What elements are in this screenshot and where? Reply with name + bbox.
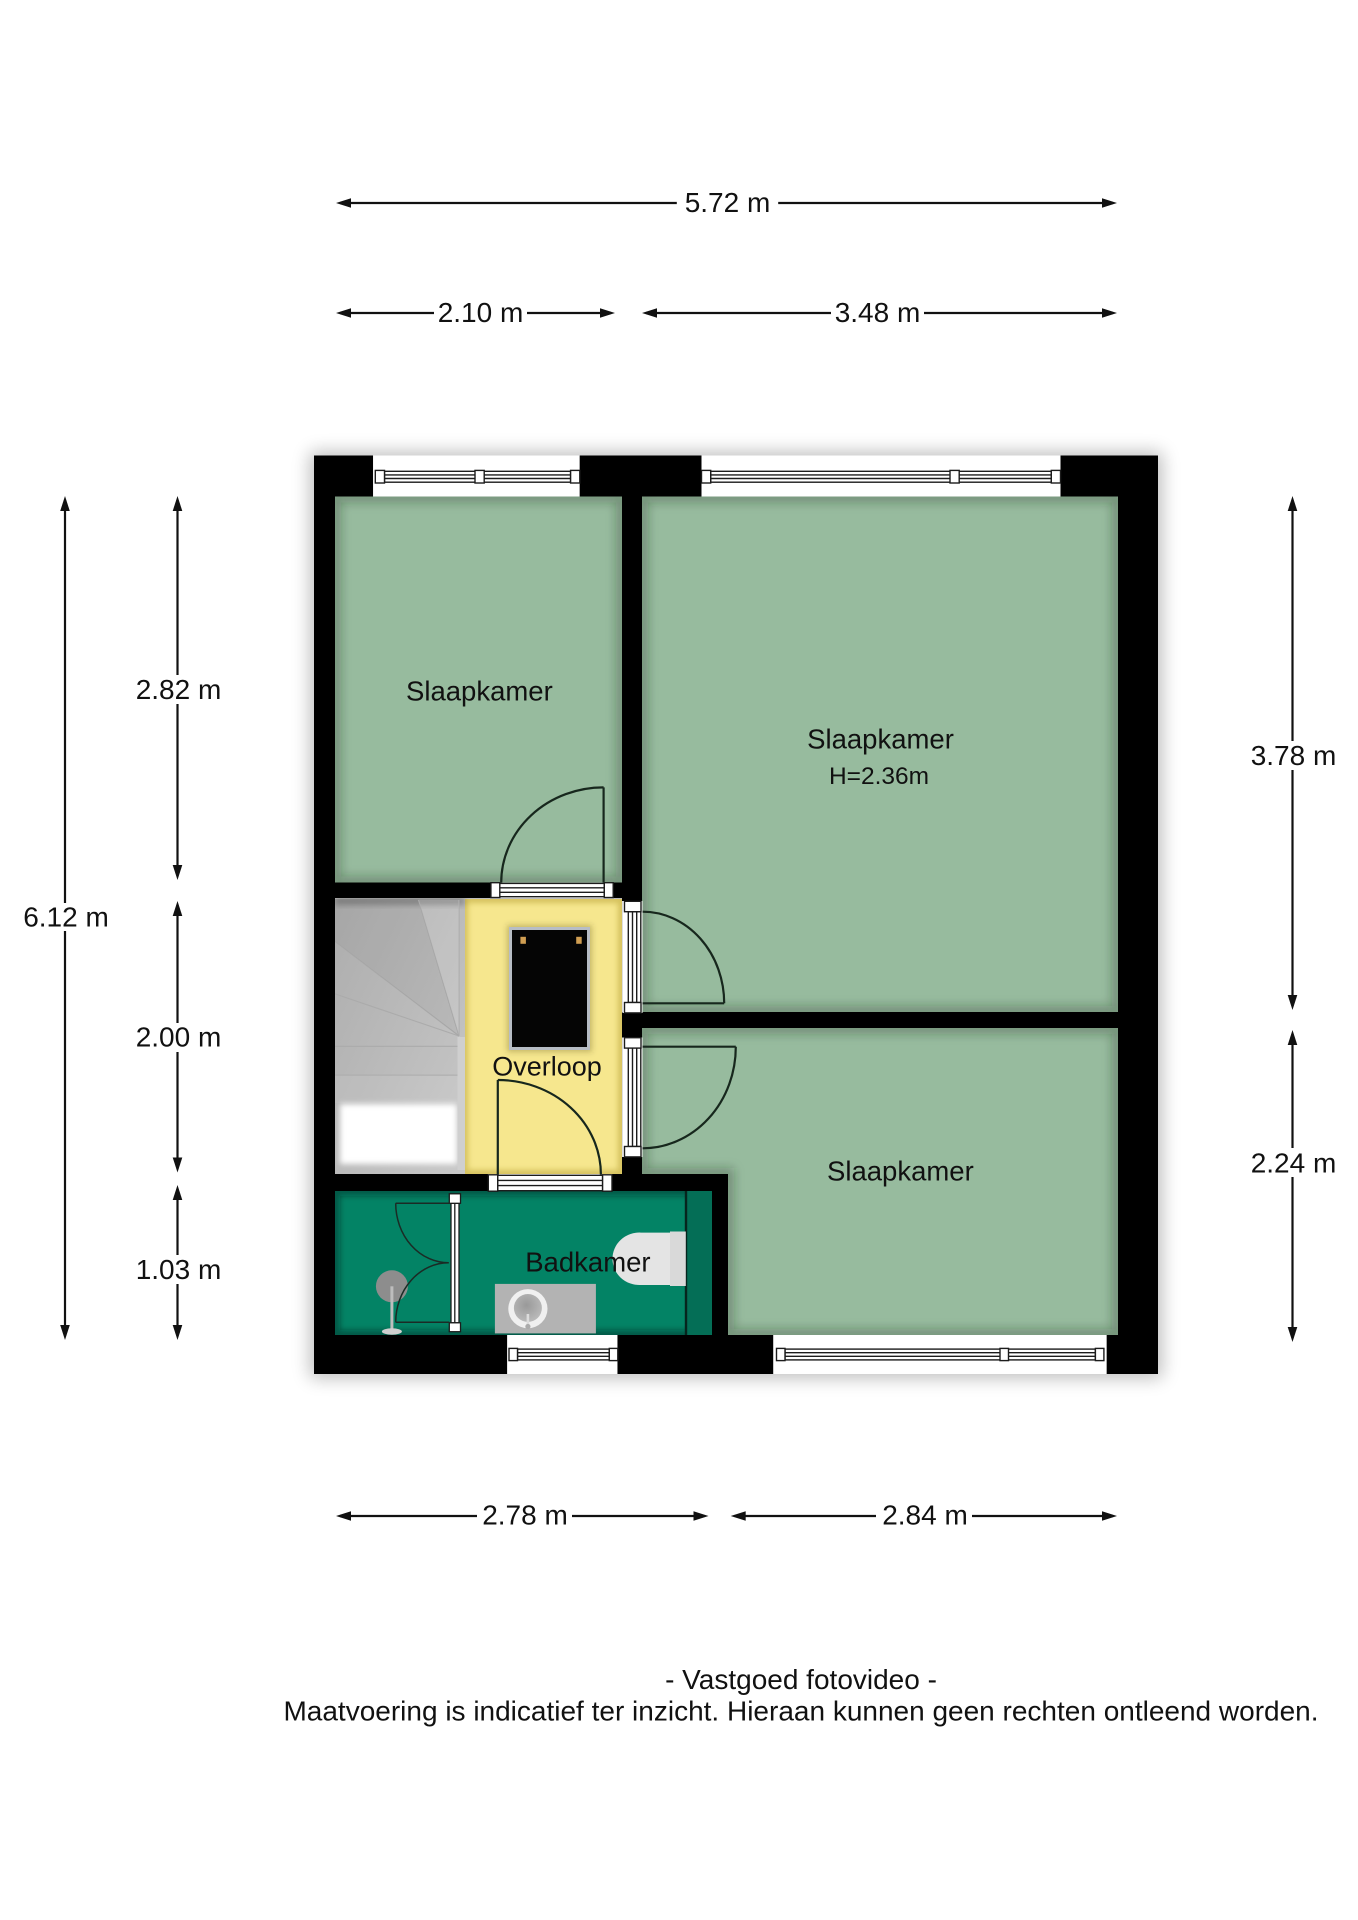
svg-text:2.82 m: 2.82 m [136,674,222,705]
svg-text:6.12 m: 6.12 m [23,902,109,933]
svg-text:2.84 m: 2.84 m [882,1500,968,1531]
svg-text:Slaapkamer: Slaapkamer [827,1156,974,1187]
svg-text:2.00 m: 2.00 m [136,1022,222,1053]
svg-text:5.72 m: 5.72 m [685,187,771,218]
svg-text:3.78 m: 3.78 m [1251,740,1337,771]
svg-text:H=2.36m: H=2.36m [829,763,929,790]
svg-text:- Vastgoed fotovideo -: - Vastgoed fotovideo - [665,1664,937,1695]
svg-text:Slaapkamer: Slaapkamer [406,676,553,707]
svg-text:Maatvoering is indicatief ter: Maatvoering is indicatief ter inzicht. H… [283,1696,1318,1727]
svg-text:Badkamer: Badkamer [525,1247,650,1278]
svg-text:Overloop: Overloop [492,1052,602,1082]
svg-text:3.48 m: 3.48 m [835,297,921,328]
svg-text:2.78 m: 2.78 m [482,1500,568,1531]
svg-text:Slaapkamer: Slaapkamer [807,724,954,755]
svg-text:2.10 m: 2.10 m [438,297,524,328]
svg-text:1.03 m: 1.03 m [136,1254,222,1285]
svg-text:2.24 m: 2.24 m [1251,1148,1337,1179]
